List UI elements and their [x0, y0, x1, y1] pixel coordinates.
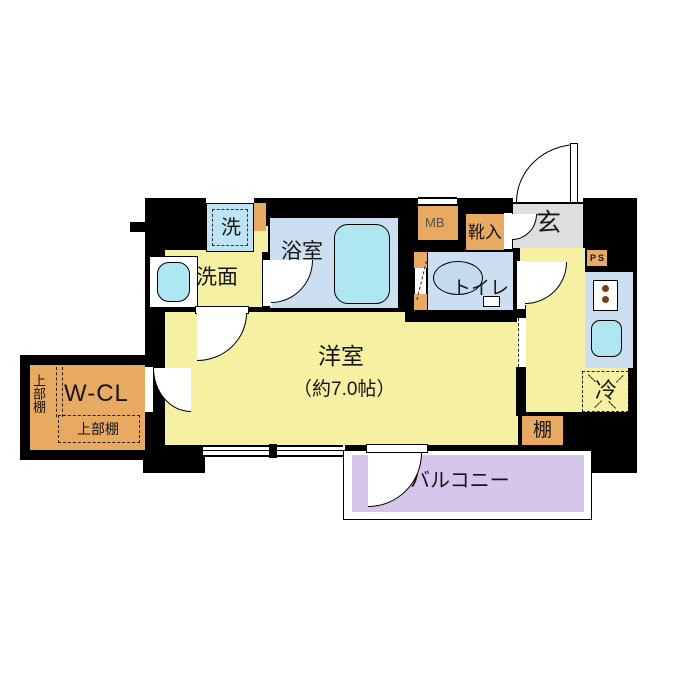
stove-burner-1 — [602, 285, 609, 292]
room-window-mullion — [269, 444, 277, 458]
floor-plan: 洗 洗面 浴室 トイレ 玄 MB 靴入 PS 冷 棚 洋室 （約7.0帖） — [0, 0, 700, 700]
wall-bottom-left-block — [143, 445, 205, 473]
bathtub — [334, 224, 390, 304]
shoebox-door-panel — [504, 213, 512, 249]
entry-door-arc — [516, 144, 578, 202]
toilet-label: トイレ — [452, 279, 509, 298]
corridor-opening-dash — [518, 318, 519, 367]
fridge-label: 冷 — [595, 380, 617, 402]
kitchen-sink — [591, 320, 622, 357]
wcl-label: W-CL — [64, 382, 129, 406]
meter-box-label: MB — [425, 216, 445, 229]
balcony-label: バルコニー — [410, 471, 510, 491]
pipe-space-label: PS — [590, 254, 606, 263]
shelf-label: 棚 — [533, 421, 552, 440]
wcl-doorway — [145, 367, 153, 412]
wall-corridor-lower — [516, 367, 526, 416]
balcony-door-panel — [366, 444, 428, 453]
stove-burner-2 — [602, 296, 609, 303]
washroom-label: 洗面 — [196, 267, 238, 288]
entry-door-panel — [570, 143, 578, 203]
vanity-basin — [157, 262, 190, 302]
shoe-box-label: 靴入 — [468, 224, 502, 241]
wcl-rail-dash-1 — [56, 367, 57, 417]
washer-side-cabinet — [254, 203, 266, 231]
bathroom-label: 浴室 — [281, 241, 323, 262]
mb-window — [418, 197, 457, 206]
wall-left-nub — [130, 222, 145, 232]
western-room-size-label: （約7.0帖） — [293, 380, 395, 399]
wcl-upper-shelf-side-label: 上部棚 — [32, 374, 45, 438]
washer-label: 洗 — [221, 218, 241, 238]
wcl-upper-shelf-bottom-label: 上部棚 — [77, 422, 119, 436]
entrance-label: 玄 — [536, 211, 561, 236]
wcl-rail-dash-2 — [62, 367, 63, 417]
wall-toilet-bottom — [405, 310, 520, 322]
corridor-door-panel — [517, 261, 525, 309]
western-room-label: 洋室 — [318, 345, 364, 368]
